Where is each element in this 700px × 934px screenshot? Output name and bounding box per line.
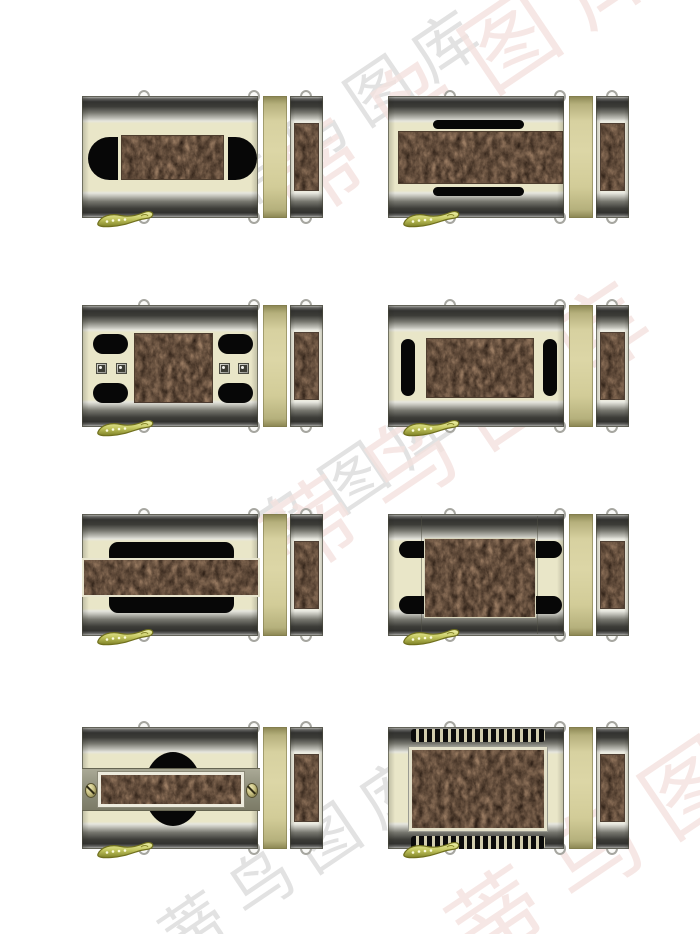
buckle-design-7: [82, 727, 324, 849]
keeper-leather-panel: [294, 754, 319, 822]
seam-line-left: [421, 516, 422, 634]
buckle-body: [388, 514, 564, 636]
half-pill-top-left: [399, 541, 425, 558]
rivet-stud: [238, 363, 249, 374]
belt-keeper: [290, 514, 323, 636]
belt-keeper: [596, 96, 629, 218]
keeper-leather-panel: [294, 541, 319, 609]
vent-grille-top: [411, 729, 545, 742]
end-cap-right: [228, 137, 257, 180]
leather-panel: [121, 135, 224, 180]
buckle-design-5: [82, 514, 324, 636]
hook-clasp: [94, 417, 158, 443]
pill-bottom-left: [93, 383, 128, 403]
accent-bar-top: [433, 120, 524, 129]
leather-frame: [98, 772, 244, 807]
leather-frame: [409, 747, 547, 831]
keeper-leather-panel: [600, 123, 625, 191]
screw-icon: [246, 783, 258, 798]
leather-panel: [134, 333, 213, 403]
khaki-stripe: [263, 96, 287, 218]
leather-panel: [412, 750, 544, 828]
belt-keeper: [290, 727, 323, 849]
screw-icon: [85, 783, 97, 798]
slot-left: [401, 339, 415, 396]
pill-top-right: [218, 334, 253, 354]
khaki-stripe: [263, 727, 287, 849]
half-pill-bottom-right: [536, 596, 562, 614]
half-pill-bottom-left: [399, 596, 425, 614]
belt-keeper: [290, 96, 323, 218]
leather-panel: [398, 131, 563, 184]
rivet-stud: [96, 363, 107, 374]
hook-clasp: [400, 417, 464, 443]
khaki-stripe: [263, 514, 287, 636]
buckle-design-4: [388, 305, 630, 427]
khaki-stripe: [263, 305, 287, 427]
pill-top-left: [93, 334, 128, 354]
khaki-stripe: [569, 727, 593, 849]
buckle-body: [82, 727, 258, 849]
hook-clasp: [94, 208, 158, 234]
buckle-design-2: [388, 96, 630, 218]
seam-line-right: [537, 516, 538, 634]
buckle-design-3: [82, 305, 324, 427]
hook-clasp: [400, 208, 464, 234]
accent-bar-bottom: [433, 187, 524, 196]
khaki-stripe: [569, 305, 593, 427]
buckle-design-8: [388, 727, 630, 849]
keeper-leather-panel: [600, 332, 625, 400]
leather-band: [82, 558, 260, 597]
hook-clasp: [94, 626, 158, 652]
buckle-body: [82, 514, 258, 636]
design-sheet: 蒂鸟图库 蒂鸟图库 蒂鸟图库 蒂鸟图库 蒂鸟图库 蒂鸟图库: [0, 0, 700, 934]
rivet-stud: [219, 363, 230, 374]
leather-strip: [101, 775, 241, 804]
end-cap-left: [88, 137, 118, 180]
buckle-body: [82, 305, 258, 427]
belt-keeper: [290, 305, 323, 427]
hook-clasp: [94, 839, 158, 865]
keeper-leather-panel: [600, 541, 625, 609]
belt-keeper: [596, 305, 629, 427]
khaki-stripe: [569, 514, 593, 636]
buckle-body: [388, 305, 564, 427]
half-pill-top-right: [536, 541, 562, 558]
leather-panel: [424, 538, 536, 618]
rivet-stud: [116, 363, 127, 374]
belt-keeper: [596, 727, 629, 849]
buckle-body: [388, 96, 564, 218]
hook-clasp: [400, 626, 464, 652]
buckle-body: [82, 96, 258, 218]
slot-right: [543, 339, 557, 396]
belt-keeper: [596, 514, 629, 636]
buckle-design-6: [388, 514, 630, 636]
keeper-leather-panel: [294, 123, 319, 191]
keeper-leather-panel: [294, 332, 319, 400]
buckle-design-1: [82, 96, 324, 218]
leather-panel: [426, 338, 534, 398]
hook-clasp: [400, 839, 464, 865]
buckle-body: [388, 727, 564, 849]
keeper-leather-panel: [600, 754, 625, 822]
khaki-stripe: [569, 96, 593, 218]
pill-bottom-right: [218, 383, 253, 403]
